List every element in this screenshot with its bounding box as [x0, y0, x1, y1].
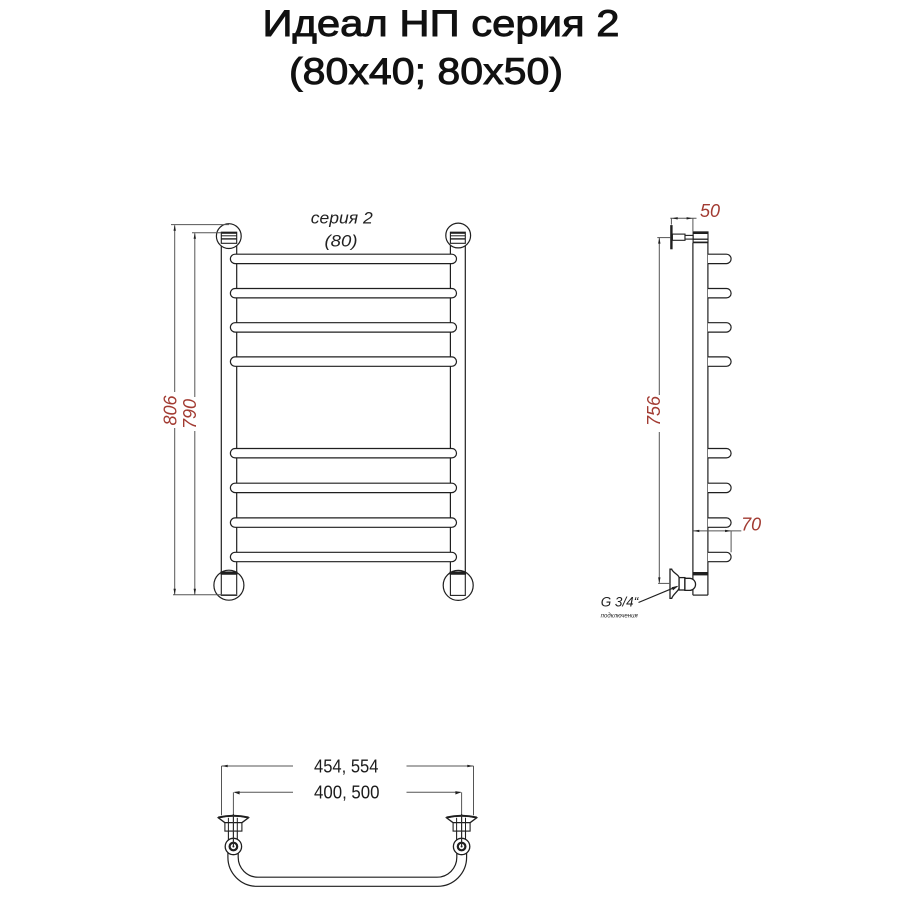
svg-text:454, 554: 454, 554	[314, 756, 379, 776]
svg-text:подключения: подключения	[601, 613, 639, 619]
svg-text:756: 756	[644, 395, 664, 426]
svg-text:70: 70	[741, 515, 761, 535]
svg-text:(80x40; 80x50): (80x40; 80x50)	[289, 51, 563, 92]
svg-text:806: 806	[160, 395, 180, 426]
svg-text:Идеал НП серия 2: Идеал НП серия 2	[263, 3, 620, 44]
svg-text:серия 2: серия 2	[311, 209, 374, 228]
svg-text:50: 50	[700, 201, 720, 221]
svg-text:790: 790	[180, 399, 200, 429]
svg-text:(80): (80)	[325, 232, 358, 251]
svg-text:G 3/4“: G 3/4“	[601, 595, 640, 610]
svg-text:400, 500: 400, 500	[314, 783, 380, 803]
